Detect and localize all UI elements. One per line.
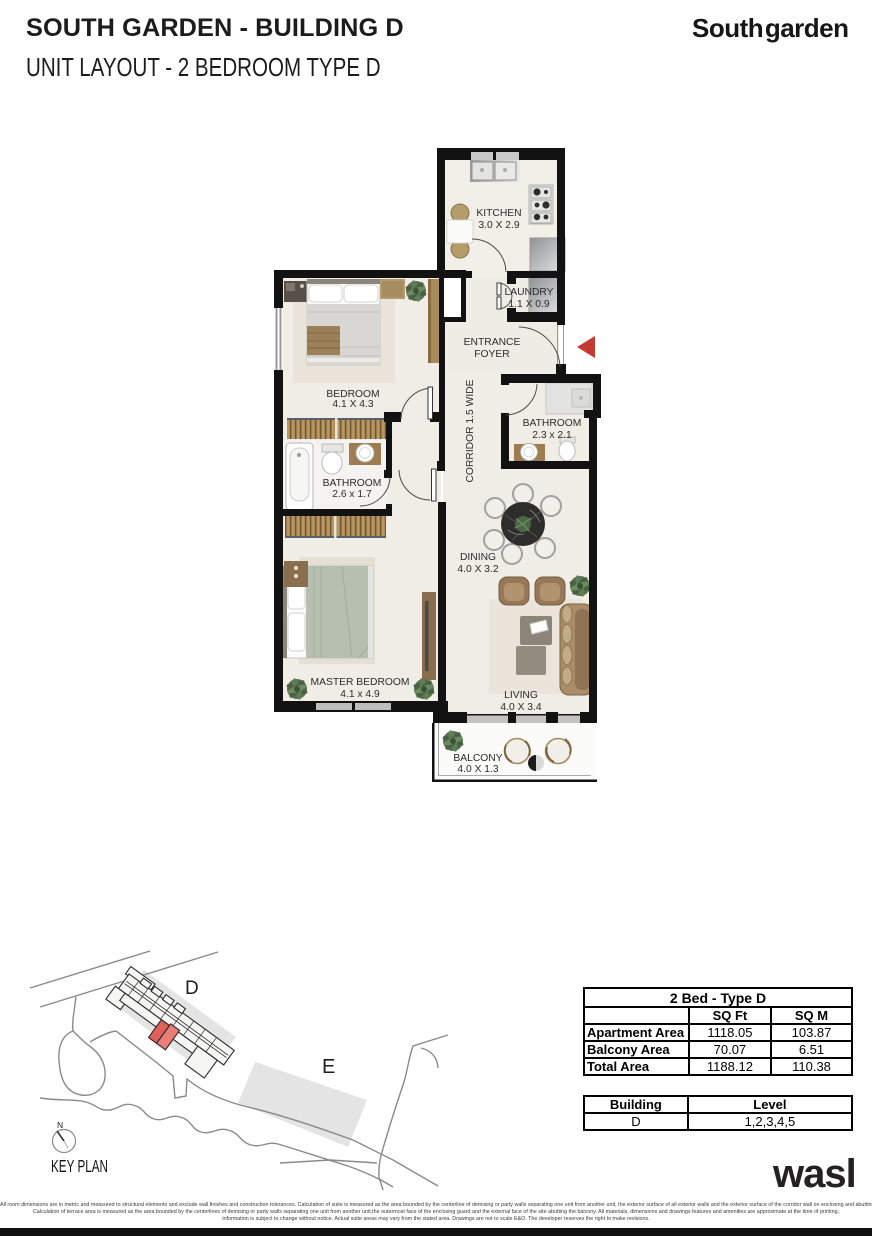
- svg-text:KEY PLAN: KEY PLAN: [51, 1156, 108, 1176]
- svg-text:3.0 X 2.9: 3.0 X 2.9: [478, 220, 519, 231]
- svg-text:ENTRANCE: ENTRANCE: [464, 337, 521, 348]
- svg-text:N: N: [57, 1120, 63, 1130]
- svg-text:4.0 X 1.3: 4.0 X 1.3: [457, 764, 498, 775]
- svg-text:2.6 x 1.7: 2.6 x 1.7: [332, 489, 372, 500]
- svg-text:1.1 X 0.9: 1.1 X 0.9: [508, 299, 549, 310]
- svg-text:4.1 X 4.3: 4.1 X 4.3: [332, 399, 373, 410]
- svg-text:4.0 X 3.4: 4.0 X 3.4: [500, 702, 541, 713]
- svg-text:E: E: [322, 1056, 335, 1078]
- svg-text:BATHROOM: BATHROOM: [523, 418, 582, 429]
- svg-text:LIVING: LIVING: [504, 690, 538, 701]
- svg-text:CORRIDOR 1.5 WIDE: CORRIDOR 1.5 WIDE: [465, 379, 476, 482]
- svg-text:BALCONY: BALCONY: [453, 753, 502, 764]
- svg-text:KITCHEN: KITCHEN: [476, 208, 521, 219]
- svg-text:FOYER: FOYER: [474, 349, 509, 360]
- svg-text:4.1 x 4.9: 4.1 x 4.9: [340, 689, 380, 700]
- svg-text:MASTER BEDROOM: MASTER BEDROOM: [311, 677, 410, 688]
- svg-text:2.3 x 2.1: 2.3 x 2.1: [532, 430, 572, 441]
- svg-text:4.0 X 3.2: 4.0 X 3.2: [457, 564, 498, 575]
- svg-text:LAUNDRY: LAUNDRY: [504, 287, 553, 298]
- svg-text:BATHROOM: BATHROOM: [323, 478, 382, 489]
- svg-text:DINING: DINING: [460, 552, 496, 563]
- svg-text:D: D: [185, 978, 199, 999]
